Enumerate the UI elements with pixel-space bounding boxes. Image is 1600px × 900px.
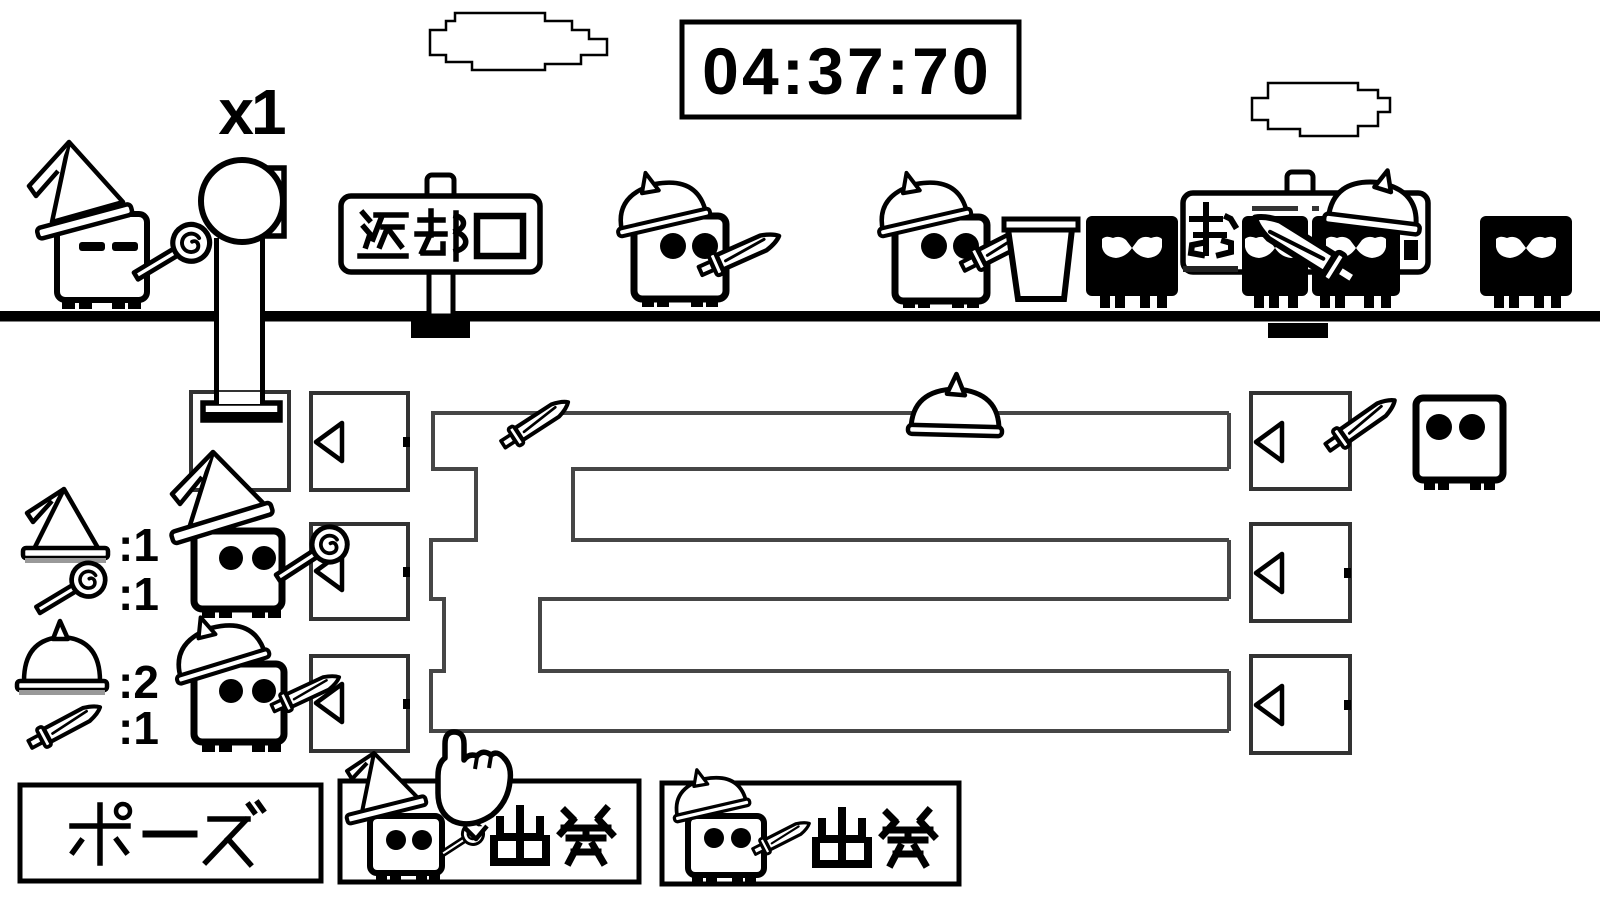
- svg-text::2: :2: [118, 656, 159, 708]
- svg-text:04:37:70: 04:37:70: [702, 34, 992, 108]
- svg-text::1: :1: [118, 519, 159, 571]
- svg-text:x1: x1: [218, 76, 285, 148]
- svg-text::1: :1: [118, 702, 159, 754]
- svg-text::1: :1: [118, 568, 159, 620]
